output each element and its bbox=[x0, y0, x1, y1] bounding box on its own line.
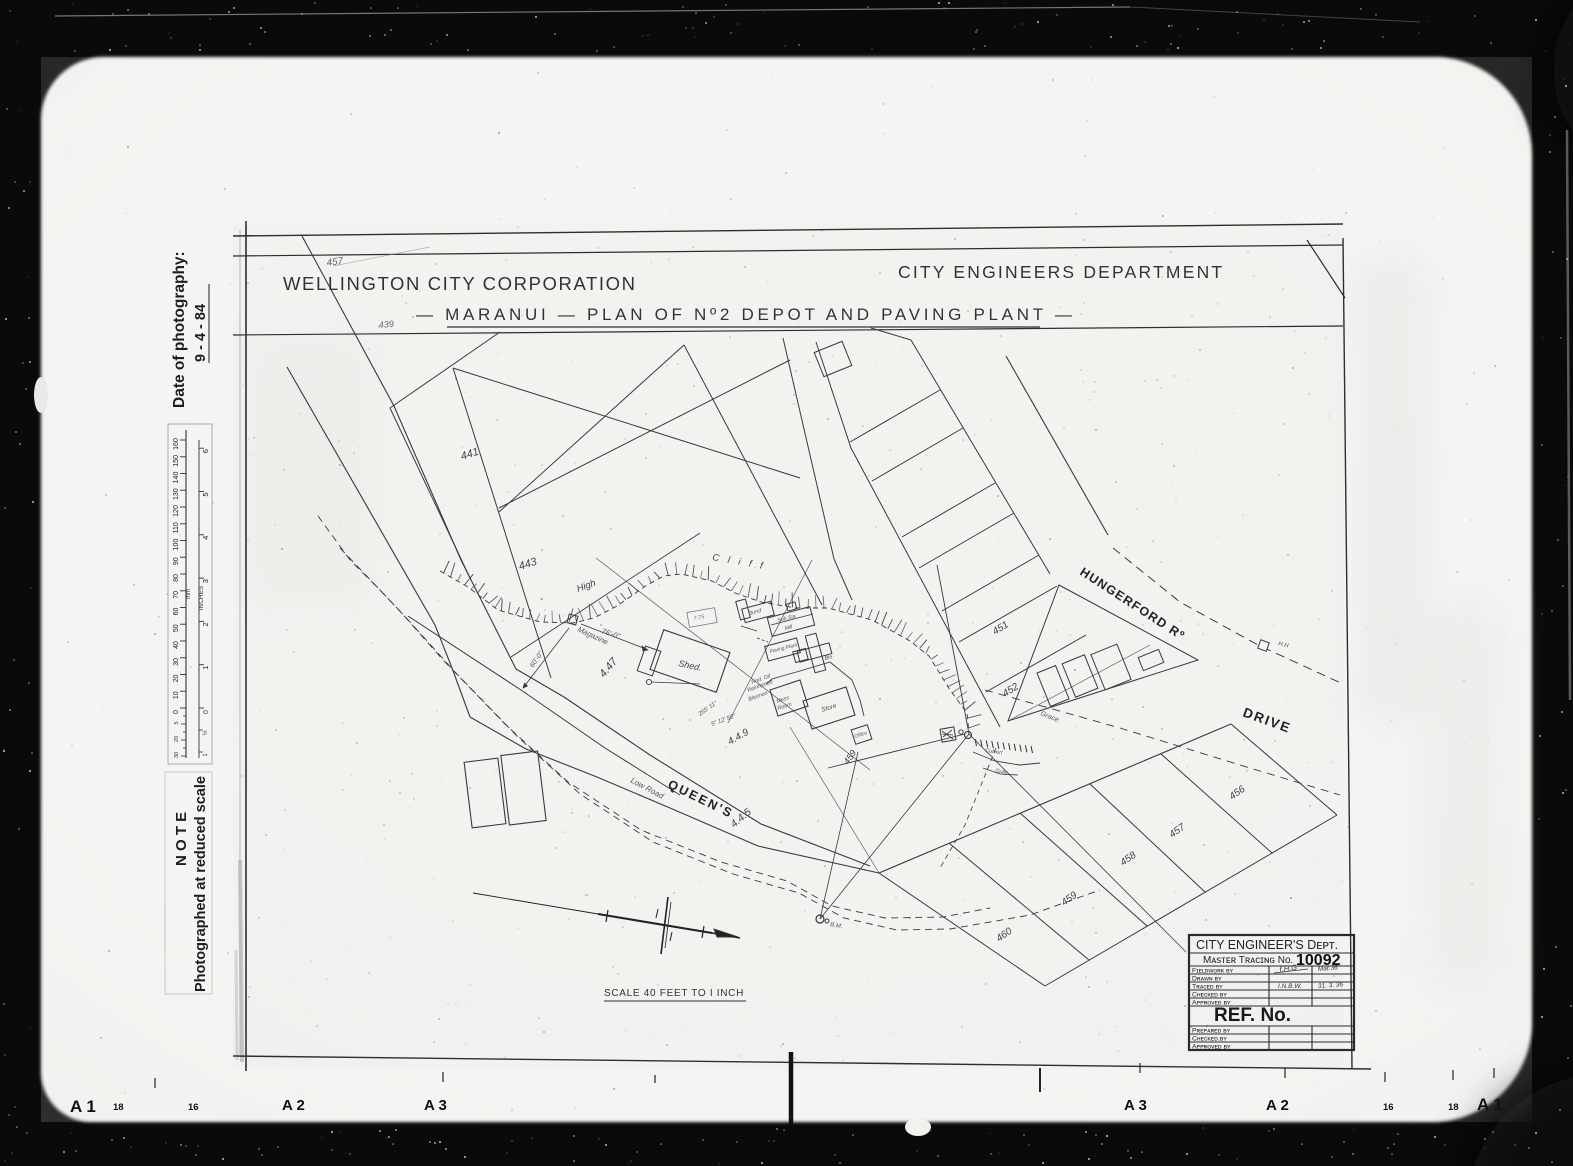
svg-text:1: 1 bbox=[201, 666, 210, 670]
svg-text:Fɪᴇʟᴅwᴏʀᴋ ʙʏ: Fɪᴇʟᴅwᴏʀᴋ ʙʏ bbox=[1192, 968, 1234, 975]
svg-text:150: 150 bbox=[173, 455, 180, 467]
svg-text:16: 16 bbox=[1383, 1102, 1394, 1113]
svg-text:10: 10 bbox=[173, 691, 180, 699]
svg-text:160: 160 bbox=[173, 438, 180, 450]
svg-text:N O T E: N O T E bbox=[173, 812, 190, 866]
svg-text:40: 40 bbox=[173, 641, 180, 649]
svg-text:18: 18 bbox=[1448, 1102, 1459, 1113]
svg-text:Tʀᴀᴄᴇᴅ ʙʏ: Tʀᴀᴄᴇᴅ ʙʏ bbox=[1192, 984, 1223, 991]
svg-text:Photographed at reduced scale: Photographed at reduced scale bbox=[193, 776, 209, 992]
svg-text:I.N.B.W.: I.N.B.W. bbox=[1278, 983, 1302, 990]
svg-text:INCHES: INCHES bbox=[198, 585, 205, 610]
svg-text:A 3: A 3 bbox=[424, 1097, 447, 1114]
svg-text:120: 120 bbox=[173, 505, 180, 517]
svg-text:A 2: A 2 bbox=[282, 1097, 305, 1114]
svg-text:Dʀᴀwɴ ʙʏ: Dʀᴀwɴ ʙʏ bbox=[1192, 976, 1222, 983]
svg-text:9 - 4 - 84: 9 - 4 - 84 bbox=[193, 304, 209, 362]
svg-text:— MARANUI — PLAN OF Nº2 DEP: — MARANUI — PLAN OF Nº2 DEPOT AND PAVING… bbox=[416, 305, 1076, 324]
svg-text:4: 4 bbox=[201, 536, 210, 540]
svg-text:30: 30 bbox=[174, 752, 180, 758]
svg-text:Cʜᴇᴄᴋᴇᴅ ʙʏ: Cʜᴇᴄᴋᴇᴅ ʙʏ bbox=[1192, 992, 1227, 999]
svg-text:140: 140 bbox=[173, 472, 180, 484]
svg-text:Aᴘᴘʀᴏᴠᴇᴅ ʙʏ: Aᴘᴘʀᴏᴠᴇᴅ ʙʏ bbox=[1192, 1044, 1231, 1051]
svg-text:80: 80 bbox=[173, 574, 180, 582]
svg-text:30: 30 bbox=[173, 658, 180, 666]
svg-text:70: 70 bbox=[173, 591, 180, 599]
svg-text:50: 50 bbox=[173, 624, 180, 632]
svg-text:6: 6 bbox=[201, 449, 210, 453]
svg-text:0: 0 bbox=[203, 710, 210, 714]
svg-text:5: 5 bbox=[201, 492, 210, 496]
svg-text:439: 439 bbox=[378, 319, 394, 330]
svg-text:Cʜᴇᴄᴋᴇᴅ.ʙʏ: Cʜᴇᴄᴋᴇᴅ.ʙʏ bbox=[1192, 1036, 1227, 1043]
svg-text:5: 5 bbox=[174, 721, 180, 724]
svg-text:Pʀᴇᴘᴀʀᴇᴅ ʙʏ: Pʀᴇᴘᴀʀᴇᴅ ʙʏ bbox=[1192, 1028, 1231, 1035]
svg-text:90: 90 bbox=[173, 557, 180, 565]
svg-text:A 1: A 1 bbox=[70, 1097, 96, 1116]
svg-text:20: 20 bbox=[173, 675, 180, 683]
svg-text:60: 60 bbox=[173, 608, 180, 616]
svg-text:WELLINGTON CITY CORPORATION: WELLINGTON CITY CORPORATION bbox=[283, 273, 637, 294]
svg-text:CITY ENGINEERS DEPARTMENT: CITY ENGINEERS DEPARTMENT bbox=[898, 262, 1224, 282]
svg-text:16: 16 bbox=[188, 1102, 199, 1113]
svg-text:A 3: A 3 bbox=[1124, 1097, 1147, 1114]
svg-text:REF. Nᴏ.: REF. Nᴏ. bbox=[1214, 1005, 1291, 1026]
svg-text:18: 18 bbox=[113, 1102, 124, 1113]
svg-text:2: 2 bbox=[201, 622, 210, 626]
svg-text:mm: mm bbox=[186, 589, 192, 599]
svg-text:½: ½ bbox=[202, 730, 209, 735]
svg-text:0: 0 bbox=[173, 710, 180, 714]
svg-text:A 1: A 1 bbox=[1477, 1095, 1503, 1114]
svg-text:20: 20 bbox=[174, 736, 180, 742]
svg-text:SCALE 40 FEET TO I IN: SCALE 40 FEET TO I INCH bbox=[604, 988, 744, 999]
svg-text:A 2: A 2 bbox=[1266, 1097, 1289, 1114]
svg-text:100: 100 bbox=[173, 539, 180, 551]
svg-text:3: 3 bbox=[201, 579, 210, 583]
svg-text:CITY ENGINEER'S Dᴇᴘᴛ.: CITY ENGINEER'S Dᴇᴘᴛ. bbox=[1196, 938, 1338, 952]
svg-text:110: 110 bbox=[173, 522, 180, 533]
svg-text:Date of photography:: Date of photography: bbox=[171, 251, 188, 408]
svg-text:130: 130 bbox=[173, 488, 180, 500]
